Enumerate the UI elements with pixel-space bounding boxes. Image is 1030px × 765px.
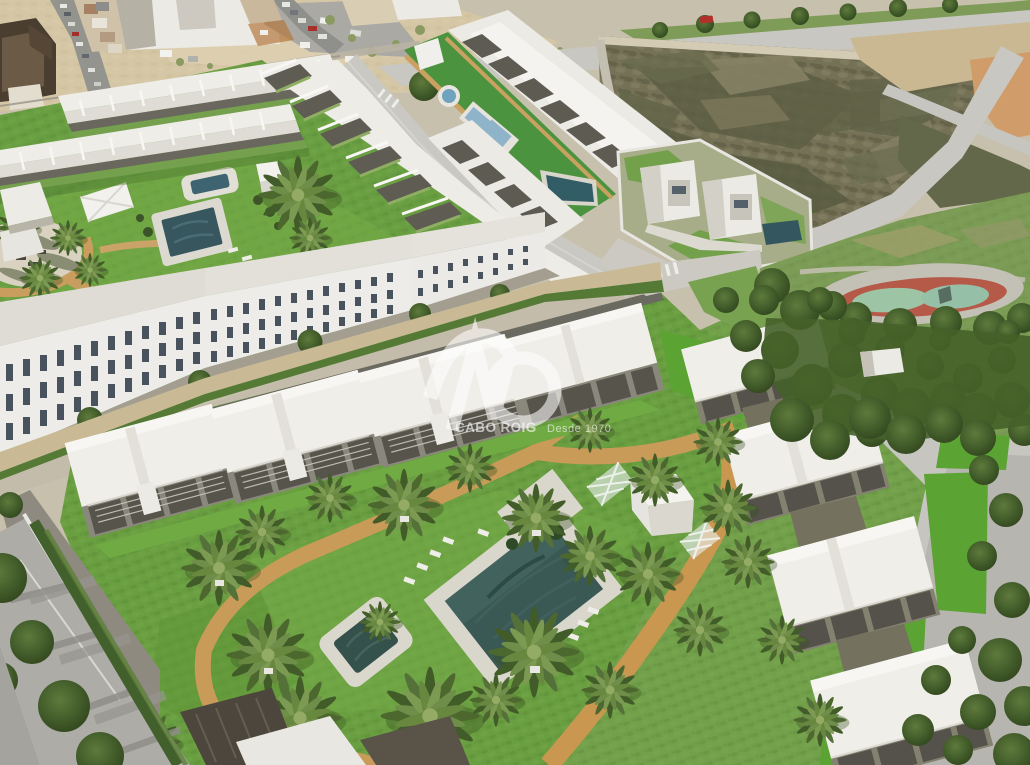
svg-text:CABO ROIG: CABO ROIG [455,420,537,435]
svg-text:Desde 1970: Desde 1970 [547,423,611,435]
